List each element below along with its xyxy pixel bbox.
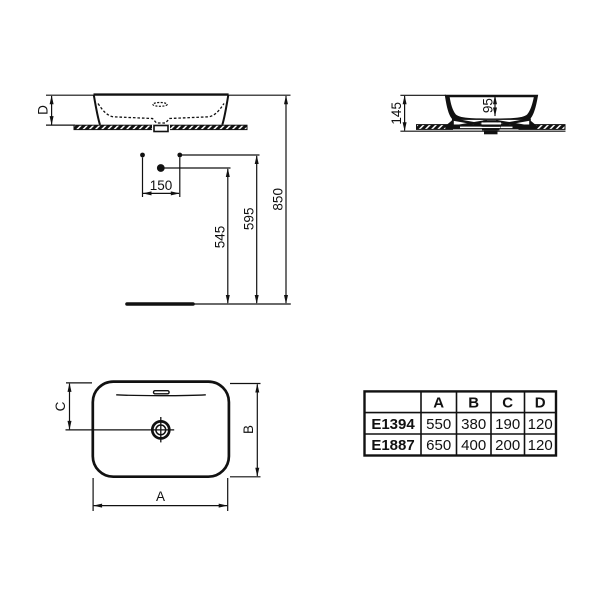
svg-text:400: 400 [461,437,486,454]
svg-text:380: 380 [461,416,486,433]
svg-text:150: 150 [150,178,173,193]
svg-text:850: 850 [270,188,285,211]
svg-text:C: C [53,401,68,411]
svg-text:E1887: E1887 [371,437,414,454]
svg-text:A: A [433,395,444,412]
svg-text:95: 95 [481,98,496,113]
svg-text:D: D [35,105,50,115]
svg-text:E1394: E1394 [371,416,415,433]
svg-text:B: B [468,395,479,412]
svg-text:B: B [241,425,256,434]
svg-text:120: 120 [528,416,553,433]
svg-text:650: 650 [426,437,451,454]
svg-text:120: 120 [528,437,553,454]
svg-text:D: D [535,395,546,412]
svg-text:550: 550 [426,416,451,433]
svg-text:A: A [156,489,165,504]
svg-text:145: 145 [389,102,404,125]
svg-text:190: 190 [495,416,520,433]
svg-text:C: C [502,395,513,412]
svg-text:200: 200 [495,437,520,454]
svg-text:595: 595 [241,208,256,231]
svg-text:545: 545 [213,226,228,249]
